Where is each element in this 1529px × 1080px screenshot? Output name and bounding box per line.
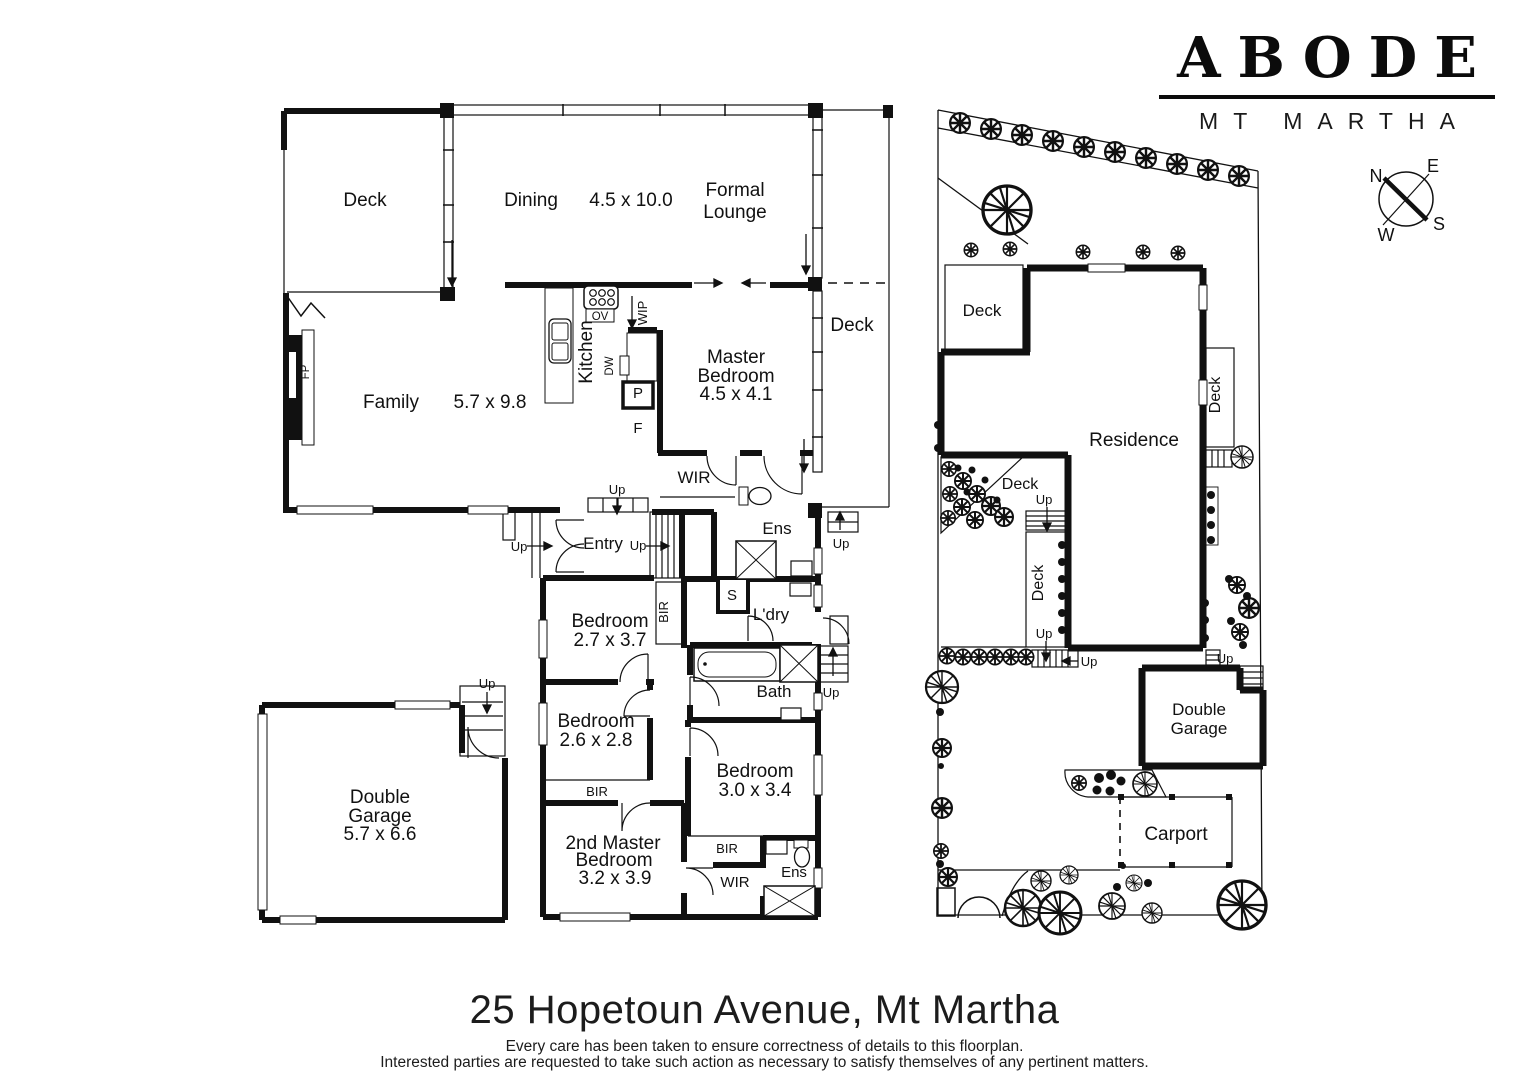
label-site-deck-a: Deck bbox=[963, 301, 1002, 320]
compass: N E S W bbox=[1370, 156, 1446, 245]
label-site-garage-2: Garage bbox=[1171, 719, 1228, 738]
label-dining-dims: 4.5 x 10.0 bbox=[589, 190, 672, 211]
label-wir-master: WIR bbox=[677, 468, 710, 487]
window-bands bbox=[444, 105, 822, 472]
label-site-up-2: Up bbox=[1036, 626, 1053, 641]
compass-e: E bbox=[1427, 156, 1439, 176]
label-family-dims: 5.7 x 9.8 bbox=[454, 392, 527, 413]
label-up-entry: Up bbox=[630, 538, 647, 553]
agency-name: ABODE bbox=[1159, 30, 1495, 99]
label-up-side: Up bbox=[823, 685, 840, 700]
label-bir2: BIR bbox=[586, 784, 608, 799]
footer: 25 Hopetoun Avenue, Mt Martha Every care… bbox=[0, 988, 1529, 1071]
disclaimer-line-2: Interested parties are requested to take… bbox=[0, 1055, 1529, 1071]
label-dw: DW bbox=[604, 356, 616, 375]
label-site-deck-c: Deck bbox=[1002, 476, 1039, 493]
label-entry: Entry bbox=[583, 534, 623, 553]
label-site-deck-b: Deck bbox=[1207, 376, 1224, 413]
label-master-1: Master bbox=[707, 347, 766, 368]
label-family: Family bbox=[363, 392, 419, 413]
label-ens2: Ens bbox=[781, 864, 807, 881]
bed-dots bbox=[1093, 770, 1126, 796]
label-site-up-4: Up bbox=[1217, 651, 1234, 666]
site-arrows bbox=[1042, 507, 1078, 665]
label-up-porch: Up bbox=[511, 539, 528, 554]
compass-w: W bbox=[1378, 225, 1395, 245]
label-ens-master: Ens bbox=[762, 519, 791, 538]
laundry-door-gap bbox=[812, 612, 824, 644]
label-formal-1: Formal bbox=[705, 180, 764, 201]
label-store: S bbox=[727, 587, 737, 604]
label-up-step: Up bbox=[609, 482, 626, 497]
label-dining: Dining bbox=[504, 190, 558, 211]
main-floorplan: Deck Dining 4.5 x 10.0 Formal Lounge Dec… bbox=[258, 103, 893, 924]
label-bed3: Bedroom bbox=[716, 761, 793, 782]
label-garage-dims: 5.7 x 6.6 bbox=[344, 824, 417, 845]
label-residence: Residence bbox=[1089, 430, 1179, 451]
label-site-garage-1: Double bbox=[1172, 700, 1226, 719]
floorplan-drawing: Deck Dining 4.5 x 10.0 Formal Lounge Dec… bbox=[0, 0, 1529, 1080]
label-bath: Bath bbox=[757, 682, 792, 701]
compass-s: S bbox=[1433, 214, 1445, 234]
label-site-up-3: Up bbox=[1081, 654, 1098, 669]
label-deck-right: Deck bbox=[830, 315, 874, 336]
label-site-up-1: Up bbox=[1036, 492, 1053, 507]
label-kitchen: Kitchen bbox=[576, 320, 597, 383]
label-fp: FP bbox=[300, 364, 312, 379]
label-wir2: WIR bbox=[720, 874, 749, 891]
label-site-deck-d: Deck bbox=[1030, 564, 1047, 601]
label-oven: OV bbox=[592, 311, 609, 323]
label-formal-2: Lounge bbox=[703, 202, 766, 223]
compass-n: N bbox=[1370, 166, 1383, 186]
east-dots bbox=[1058, 491, 1251, 649]
floorplan-page: Deck Dining 4.5 x 10.0 Formal Lounge Dec… bbox=[0, 0, 1529, 1080]
site-plan: Deck Residence Deck Deck Deck Double Gar… bbox=[926, 110, 1266, 934]
label-master-dims: 4.5 x 4.1 bbox=[700, 384, 773, 405]
label-bir3: BIR bbox=[716, 841, 738, 856]
label-bed2: Bedroom bbox=[557, 711, 634, 732]
label-up-deck: Up bbox=[833, 536, 850, 551]
label-wip: WIP bbox=[635, 301, 650, 326]
property-address: 25 Hopetoun Avenue, Mt Martha bbox=[0, 988, 1529, 1033]
site-window-slots bbox=[1088, 264, 1207, 405]
fireplace bbox=[283, 335, 302, 440]
label-pantry: P bbox=[633, 385, 643, 402]
vegetation bbox=[926, 113, 1266, 934]
label-bir1: BIR bbox=[656, 601, 671, 623]
label-fridge: F bbox=[633, 420, 642, 437]
label-master2-dims: 3.2 x 3.9 bbox=[579, 868, 652, 889]
agency-suburb: MT MARTHA bbox=[1159, 108, 1495, 135]
disclaimer-line-1: Every care has been taken to ensure corr… bbox=[0, 1039, 1529, 1055]
label-ldry: L'dry bbox=[753, 605, 790, 624]
label-bed2-dims: 2.6 x 2.8 bbox=[560, 730, 633, 751]
label-carport: Carport bbox=[1144, 824, 1208, 845]
label-up-garage: Up bbox=[479, 676, 496, 691]
label-bed1-dims: 2.7 x 3.7 bbox=[574, 630, 647, 651]
agency-logo: ABODE MT MARTHA bbox=[1159, 30, 1495, 135]
label-bed1: Bedroom bbox=[571, 611, 648, 632]
site-walls bbox=[941, 268, 1263, 766]
label-deck-main: Deck bbox=[343, 190, 387, 211]
label-garage-1: Double bbox=[350, 787, 410, 808]
label-bed3-dims: 3.0 x 3.4 bbox=[719, 780, 792, 801]
